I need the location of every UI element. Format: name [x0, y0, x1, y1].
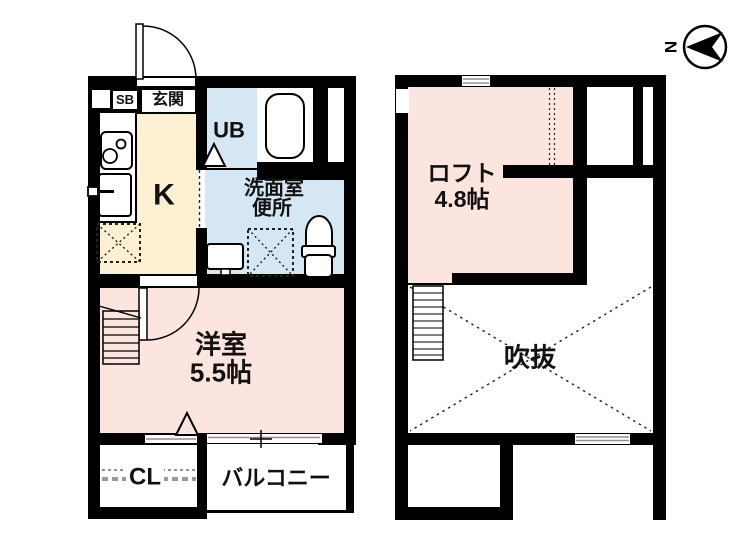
f2-left-wall	[395, 75, 408, 520]
unit-bath-label: UB	[213, 118, 245, 141]
f1-closet-window	[145, 433, 197, 445]
f2-top-wall	[395, 75, 666, 87]
f2-box-bottom-wall	[395, 507, 513, 520]
kitchen-room	[100, 114, 198, 274]
f1-right-wall	[344, 76, 356, 445]
shoe-box-label: SB	[116, 93, 134, 107]
f1-corner-window	[92, 90, 110, 108]
bathtub-icon	[266, 94, 304, 158]
f2-bottom-window	[575, 433, 630, 445]
f2-inner-wall-top	[633, 87, 643, 165]
floorplan-canvas: N SB 玄関 UB K 洗面室 便所 洋室 5.5帖 CL バルコニー ロフト…	[0, 0, 750, 550]
compass-icon: N	[662, 26, 727, 68]
f1-top-wall-right	[195, 76, 356, 88]
compass-north-label: N	[662, 41, 681, 53]
void-label: 吹抜	[504, 344, 556, 371]
f1-bottom-wall-b	[318, 433, 356, 445]
f1-balcony-bottom-line	[207, 510, 354, 513]
washroom-label-line1: 洗面室	[244, 179, 304, 200]
f2-top-window	[462, 75, 490, 87]
f1-kitchen-ub-wall	[196, 88, 207, 170]
kitchen-label: K	[153, 179, 175, 211]
f1-bottom-wall-a	[88, 433, 145, 445]
closet-label: CL	[126, 464, 164, 489]
f1-room-top-wall-right	[197, 274, 356, 288]
loft-room	[408, 87, 575, 285]
loft-bottom-wall	[452, 273, 587, 285]
f1-left-wall	[88, 76, 100, 519]
balcony-label: バルコニー	[221, 466, 331, 489]
loft-right-wall	[573, 87, 587, 285]
loft-floor-edge	[408, 283, 452, 285]
loft-name: ロフト	[428, 161, 497, 185]
f1-room-top-wall-left	[88, 274, 140, 288]
f2-left-wall-window	[396, 89, 409, 113]
f1-balcony-sliding-door	[207, 433, 322, 444]
f1-balcony-right-wall	[346, 445, 354, 512]
western-room-size: 5.5帖	[190, 359, 252, 386]
f1-room-doorway	[140, 274, 197, 288]
f2-stairs-icon	[413, 286, 443, 360]
loft-size: 4.8帖	[435, 187, 490, 211]
f2-horizontal-wall	[503, 165, 666, 178]
washroom-label-line2: 便所	[252, 199, 292, 220]
f1-entrance-doorway	[137, 76, 195, 88]
f1-kitchen-washroom-wall	[196, 228, 207, 274]
f2-right-wall	[653, 75, 666, 520]
f1-closet-bottom-wall	[88, 507, 207, 519]
f2-box-right-wall	[500, 445, 513, 520]
entrance-label: 玄関	[152, 93, 184, 110]
entrance-door-icon	[136, 24, 196, 79]
f1-bath-wall-block	[313, 88, 328, 165]
western-room-name: 洋室	[195, 331, 247, 358]
